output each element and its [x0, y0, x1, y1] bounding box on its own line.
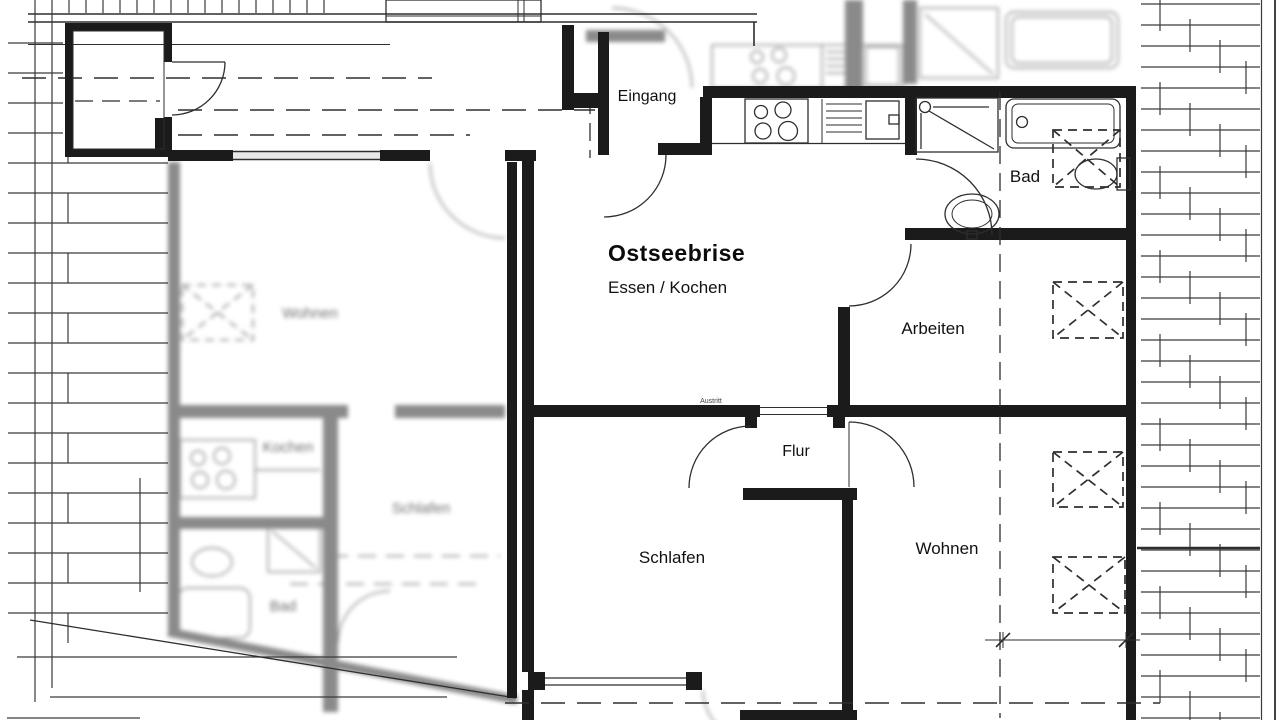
neighbor-room-label-schlafen: Schlafen: [392, 500, 450, 517]
neighbor-party-wall: [507, 162, 517, 698]
bottom-wall: [740, 710, 857, 720]
skylight-dashed-box-icon: [1053, 130, 1120, 187]
door-swing-icon: [604, 155, 666, 217]
neighbor-room-label-wohnen: Wohnen: [282, 305, 338, 322]
stove-burners-icon: [745, 99, 808, 143]
sharp-apartment-layer: Eingang Ostseebrise Essen / Kochen Bad A…: [7, 0, 1275, 720]
skylight-cross: [1053, 130, 1120, 187]
bathtub-icon: [1006, 99, 1120, 148]
neighbor-wall: [168, 405, 348, 418]
upper-window-divider: [518, 0, 524, 22]
storage-room: [65, 23, 225, 157]
main-cross-wall: [522, 405, 1132, 417]
skylight-frame: [1053, 130, 1120, 187]
toilet-icon: [1075, 158, 1130, 190]
upper-bath-fixtures: [920, 8, 1118, 78]
arbeiten-left-wall: [838, 307, 850, 417]
floor-plan-page: Wohnen Kochen Schlafen Bad: [0, 0, 1280, 720]
skylight-dashed-box-icon: [1053, 282, 1123, 338]
apartment-left-wall: [522, 690, 534, 720]
skylight-dashed-box-icon: [1053, 557, 1125, 613]
floor-plan-drawing: Wohnen Kochen Schlafen Bad: [0, 0, 1280, 720]
kitchen-sink-icon: [826, 101, 899, 139]
door-swing-icon: [172, 62, 225, 115]
corridor-wall: [168, 150, 536, 161]
upper-floor-wall: [903, 0, 917, 84]
apartment-title: Ostseebrise: [608, 240, 745, 266]
upper-floor-wall: [586, 30, 665, 42]
window-glass: [233, 152, 380, 159]
shower-icon: [916, 98, 998, 152]
room-label-schlafen: Schlafen: [639, 548, 705, 567]
right-roof-hatch: [1141, 0, 1260, 720]
door-swing-icon: [916, 159, 992, 235]
upper-kitchen-fixtures: [712, 45, 903, 88]
neighbor-room-label-bad: Bad: [270, 598, 297, 615]
neighbor-wall: [395, 405, 505, 418]
left-roof-hatch: [7, 43, 457, 718]
room-label-arbeiten: Arbeiten: [901, 319, 964, 338]
room-label-eingang: Eingang: [618, 88, 677, 105]
room-label-flur: Flur: [782, 443, 810, 460]
bathroom: [905, 86, 1132, 240]
kitchen-top-wall: [703, 86, 1132, 98]
door-swing-icon: [430, 163, 505, 238]
door-swing-icon: [849, 244, 911, 306]
top-railing-hatch: [35, 0, 324, 13]
entrance-door-swing-icon: [612, 8, 692, 88]
door-swing-icon: [849, 422, 914, 487]
door-swing-icon: [689, 426, 751, 488]
kitchen-fixtures: [712, 99, 905, 144]
room-label-wohnen: Wohnen: [915, 539, 978, 558]
roof-edge-diagonal: [30, 620, 516, 698]
upper-floor-wall: [845, 0, 863, 95]
schlafen-window: [528, 672, 702, 690]
neighbor-wall: [168, 162, 180, 632]
room-divider-wall: [842, 500, 853, 720]
label-austritt: Austritt: [700, 398, 722, 405]
skylight-dashed-box-icon: [182, 285, 253, 340]
room-label-essen-kochen: Essen / Kochen: [608, 278, 727, 297]
room-label-bad: Bad: [1010, 167, 1040, 186]
door-swing-icon: [338, 591, 390, 643]
blurred-neighbor-apartment: Wohnen Kochen Schlafen Bad: [168, 0, 1118, 720]
skylight-group: [1053, 130, 1125, 613]
neighbor-bath-fixtures: [178, 527, 390, 643]
apartment-right-wall: [1126, 86, 1136, 720]
neighbor-room-label-kochen: Kochen: [263, 439, 314, 456]
skylight-dashed-box-icon: [1053, 452, 1123, 507]
dimension-line: [985, 632, 1140, 648]
skylight-cross: [1053, 130, 1120, 187]
